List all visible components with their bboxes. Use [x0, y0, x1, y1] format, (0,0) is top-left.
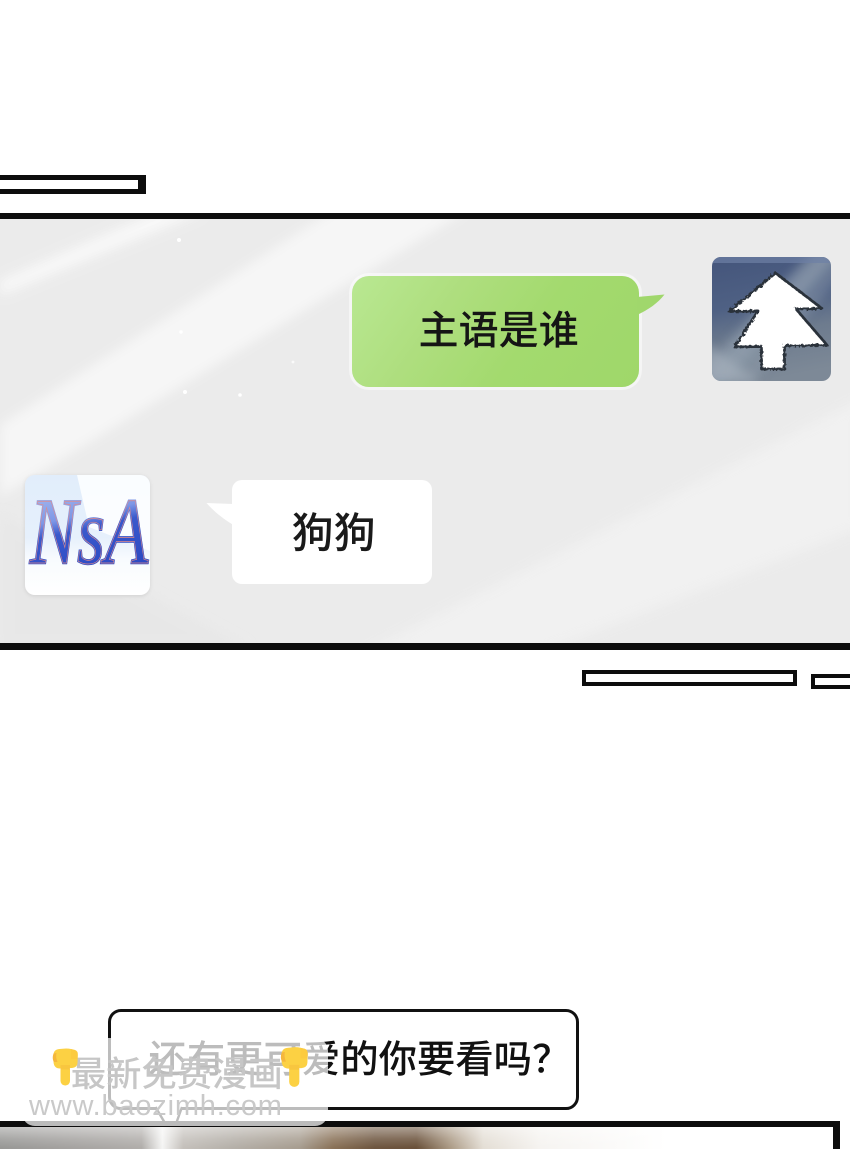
svg-text:NsA: NsA [29, 480, 148, 584]
